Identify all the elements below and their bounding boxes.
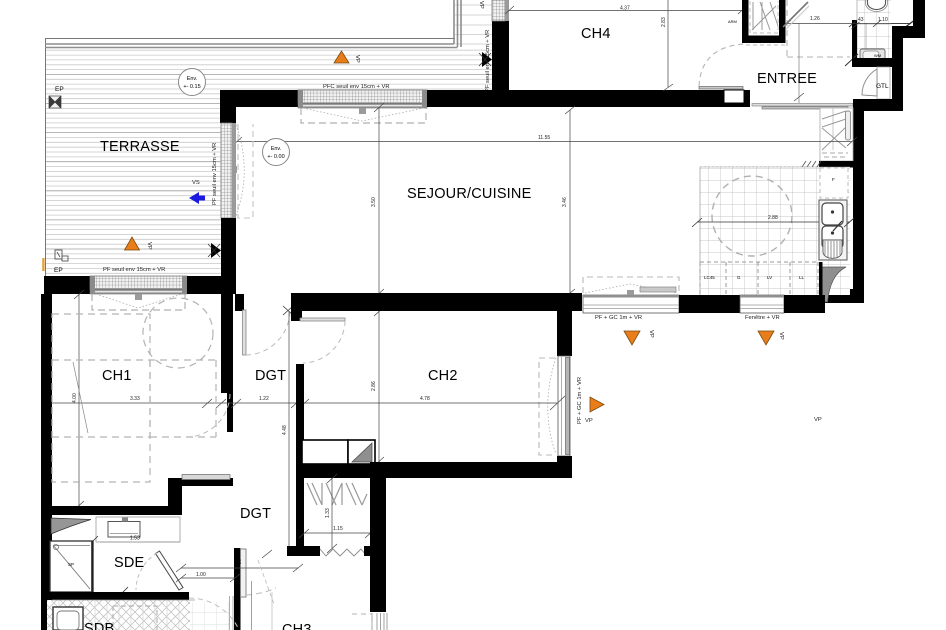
svg-text:+- 0.00: +- 0.00 [267, 154, 284, 160]
svg-text:VP: VP [146, 242, 152, 250]
svg-text:ARM: ARM [728, 19, 737, 24]
svg-text:43: 43 [858, 17, 864, 23]
svg-text:SEJOUR/CUISINE: SEJOUR/CUISINE [407, 186, 532, 202]
svg-text:PFC seuil env 15cm + VR: PFC seuil env 15cm + VR [323, 84, 390, 90]
svg-text:DGT: DGT [240, 506, 271, 522]
svg-text:LV: LV [767, 275, 772, 280]
svg-text:VS: VS [192, 180, 200, 186]
svg-text:GTL: GTL [876, 83, 889, 90]
svg-text:4.48: 4.48 [282, 425, 288, 435]
svg-text:VP: VP [585, 418, 593, 424]
svg-text:1.26: 1.26 [810, 16, 820, 22]
svg-text:PF seuil env 15cm + VR: PF seuil env 15cm + VR [103, 267, 165, 273]
svg-text:CH2: CH2 [428, 368, 458, 384]
svg-text:Env.: Env. [187, 76, 198, 82]
svg-text:VP: VP [814, 417, 822, 423]
svg-text:LC45: LC45 [704, 275, 715, 280]
svg-text:G: G [737, 275, 741, 280]
svg-text:DGT: DGT [255, 368, 286, 384]
svg-text:WM: WM [874, 53, 881, 58]
svg-text:1.15: 1.15 [333, 526, 343, 532]
svg-text:F: F [832, 177, 835, 182]
svg-text:ENTREE: ENTREE [757, 71, 817, 87]
svg-text:LL: LL [799, 275, 805, 280]
svg-text:Fenêtre + VR: Fenêtre + VR [745, 315, 780, 321]
svg-text:2.88: 2.88 [768, 215, 778, 221]
svg-text:VP: VP [648, 330, 654, 338]
svg-text:CH4: CH4 [581, 26, 611, 42]
svg-text:1.10: 1.10 [878, 17, 888, 23]
svg-text:11.55: 11.55 [538, 135, 550, 141]
svg-text:2.83: 2.83 [661, 17, 667, 27]
svg-text:CH3: CH3 [282, 622, 312, 630]
svg-text:3.46: 3.46 [562, 197, 568, 207]
svg-text:1.33: 1.33 [325, 508, 331, 518]
svg-text:1.00: 1.00 [196, 572, 206, 578]
svg-text:EP: EP [55, 86, 64, 93]
svg-text:PF + GC 1m + VR: PF + GC 1m + VR [577, 377, 583, 424]
svg-text:VP: VP [778, 332, 784, 340]
svg-text:SDE: SDE [114, 555, 145, 571]
svg-text:SP: SP [68, 562, 74, 567]
svg-text:VP: VP [478, 1, 484, 9]
svg-text:17: 17 [237, 559, 242, 565]
svg-text:CH1: CH1 [102, 368, 132, 384]
svg-text:4.78: 4.78 [420, 396, 430, 402]
svg-text:1.22: 1.22 [259, 396, 269, 402]
svg-text:3.50: 3.50 [371, 197, 377, 207]
svg-text:Env.: Env. [271, 146, 282, 152]
svg-text:+- 0.15: +- 0.15 [183, 84, 200, 90]
svg-text:3.33: 3.33 [130, 396, 140, 402]
svg-text:4.37: 4.37 [620, 6, 630, 12]
svg-text:2.86: 2.86 [371, 381, 377, 391]
svg-text:4.00: 4.00 [72, 393, 78, 403]
svg-text:SDB: SDB [84, 621, 114, 630]
svg-text:PF seuil env 15cm + VR: PF seuil env 15cm + VR [212, 143, 218, 205]
svg-text:VP: VP [354, 55, 360, 63]
svg-text:PF + GC 1m + VR: PF + GC 1m + VR [595, 315, 642, 321]
svg-text:1.53: 1.53 [130, 536, 140, 542]
svg-text:EP: EP [54, 267, 63, 274]
svg-text:TERRASSE: TERRASSE [100, 139, 180, 155]
